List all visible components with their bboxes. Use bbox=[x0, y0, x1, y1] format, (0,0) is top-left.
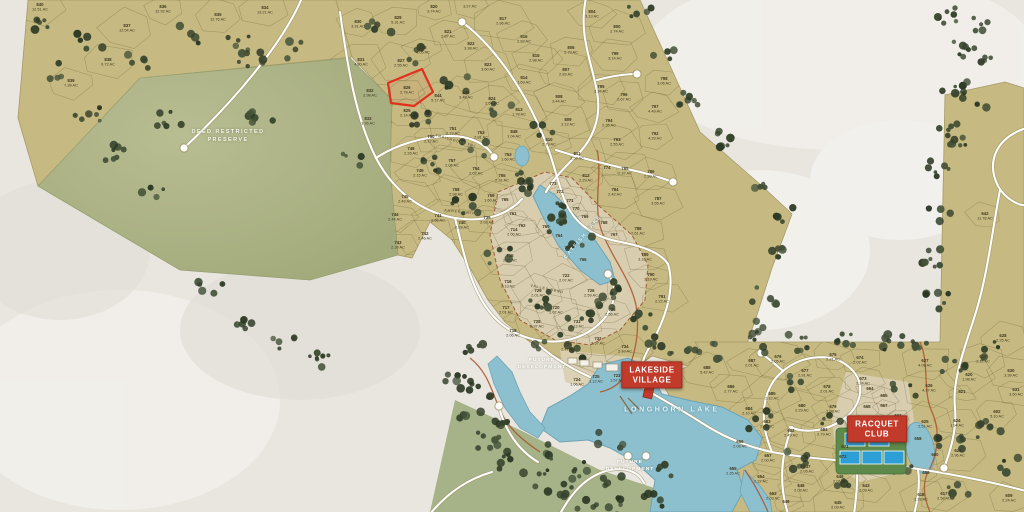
lot-label[interactable]: 765 bbox=[501, 197, 509, 202]
lot-label[interactable]: 671 bbox=[841, 444, 849, 449]
lot-label[interactable]: 664 bbox=[866, 386, 874, 391]
lot-label[interactable]: 771 bbox=[566, 198, 574, 203]
racquet-club-badge[interactable]: RACQUETCLUB bbox=[847, 415, 907, 442]
lot-label[interactable]: 767 bbox=[610, 232, 618, 237]
lot-label[interactable]: 769 bbox=[581, 214, 589, 219]
lot-label[interactable]: 774 bbox=[603, 165, 611, 170]
lot-label[interactable]: 649 bbox=[782, 499, 790, 504]
lot-label[interactable]: 658 bbox=[914, 436, 922, 441]
lot-label[interactable]: 764 bbox=[555, 233, 563, 238]
lot-label[interactable]: 668 bbox=[863, 404, 871, 409]
lot-label[interactable]: 770 bbox=[572, 206, 580, 211]
lot-label[interactable]: 667 bbox=[880, 403, 888, 408]
plat-map-canvas[interactable]: 84012.51 AC83712.54 AC83612.92 AC83512.7… bbox=[0, 0, 1024, 512]
lot-label[interactable]: 773 bbox=[549, 181, 557, 186]
lot-label[interactable]: 3.27 AC bbox=[463, 4, 477, 9]
lakeside-village-badge[interactable]: LAKESIDEVILLAGE bbox=[621, 361, 682, 388]
lot-label[interactable]: 660 bbox=[931, 452, 939, 457]
lot-label[interactable]: 761 bbox=[509, 211, 517, 216]
lot-label[interactable]: 762 bbox=[518, 223, 526, 228]
lot-label[interactable]: 766 bbox=[579, 257, 587, 262]
lot-label[interactable]: 768 bbox=[600, 220, 608, 225]
lot-label[interactable]: 665 bbox=[880, 393, 888, 398]
lot-label[interactable]: 772 bbox=[556, 189, 564, 194]
lot-label[interactable]: 659 bbox=[922, 470, 930, 475]
lot-label[interactable]: 763 bbox=[564, 245, 572, 250]
lot-label[interactable]: 621 bbox=[958, 389, 966, 394]
lot-label[interactable]: 760 bbox=[542, 224, 550, 229]
lot-label[interactable]: 672 bbox=[839, 454, 847, 459]
